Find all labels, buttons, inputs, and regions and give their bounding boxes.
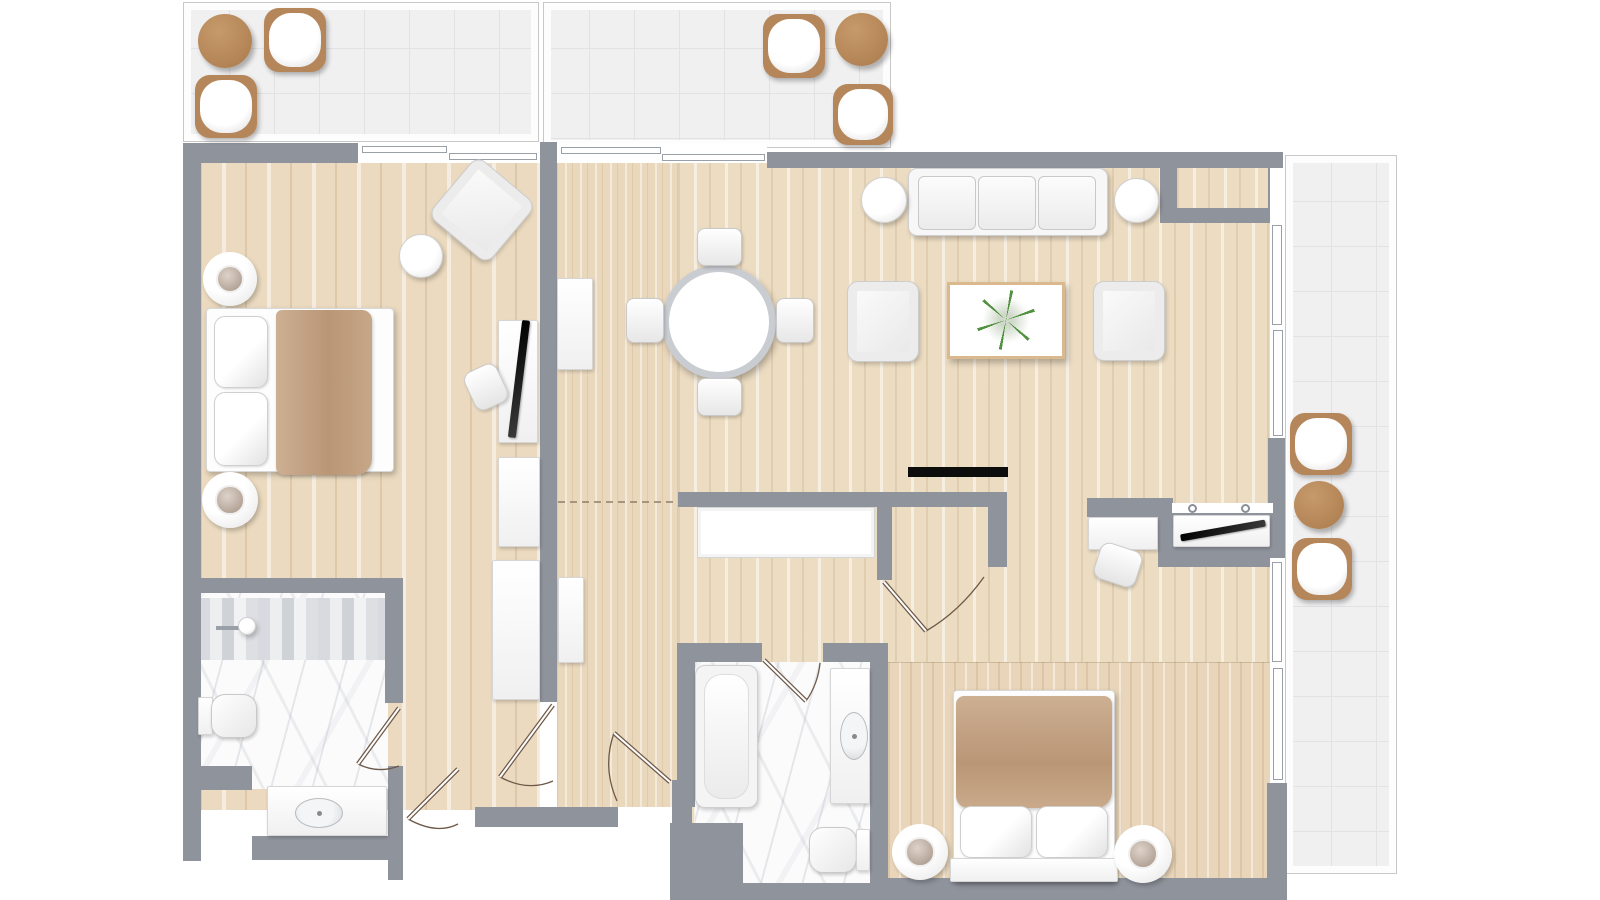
bedroom1-wardrobe xyxy=(492,560,540,700)
sliding-panel xyxy=(561,147,661,154)
bathroom1-top-wall xyxy=(183,578,403,593)
hall-sideboard-upper xyxy=(557,278,593,370)
entry-right-jamb-wall xyxy=(672,780,692,825)
balcony1-chair-a xyxy=(264,8,326,72)
bathroom1-toilet-bowl xyxy=(211,694,257,738)
bathroom2-toilet-tank xyxy=(856,829,870,871)
balcony1-round-table xyxy=(198,14,252,68)
bathroom1-right-wall-upper xyxy=(385,593,403,703)
balcony2-chair-b xyxy=(833,84,893,145)
balcony1-chair-b xyxy=(195,75,257,138)
bathroom2-bathtub xyxy=(695,665,758,808)
sofa-cushion-left xyxy=(918,176,976,230)
living-wall-tv xyxy=(908,467,1008,477)
bedroom2-headboard xyxy=(950,858,1118,882)
desk xyxy=(1088,517,1158,550)
bathroom2-toilet-bowl xyxy=(809,827,857,873)
bathroom1-right-wall-lower xyxy=(388,766,403,880)
living-armchair-right xyxy=(1094,282,1164,360)
window-panel xyxy=(1272,225,1282,325)
bedroom1-nightstand-top xyxy=(203,252,257,306)
sofa-cushion-right xyxy=(1038,176,1096,230)
hall-closet-interior xyxy=(697,507,875,558)
bedroom2-blanket xyxy=(956,696,1112,808)
bathroom2-top-wall-left xyxy=(677,643,762,662)
bathroom2-sink xyxy=(840,712,868,760)
dining-chair-left xyxy=(626,298,664,343)
window-panel xyxy=(1273,330,1283,436)
balcony3-round-table xyxy=(1294,481,1344,529)
bedroom2-nightstand-right xyxy=(1114,825,1172,883)
sofa-side-table-right xyxy=(1114,178,1159,223)
right-wall-bottom-corner xyxy=(1267,783,1287,883)
floor-plan xyxy=(0,0,1600,900)
hall-bottom-wall xyxy=(475,807,618,827)
bathroom2-top-wall-right xyxy=(823,643,888,662)
hall-floor xyxy=(557,163,678,807)
niche-knob-right xyxy=(1241,504,1250,513)
sofa-side-table-left xyxy=(861,177,907,223)
bedroom1-east-wall xyxy=(540,142,557,702)
bathroom2-bottomleft-block xyxy=(670,823,743,900)
balcony3-chair-a xyxy=(1290,413,1352,475)
hall-closet-wall xyxy=(678,492,1007,507)
dining-chair-right xyxy=(776,298,814,343)
bedroom1-side-table xyxy=(399,234,443,278)
bedroom1-pillow-a xyxy=(214,316,268,388)
bedroom1-dresser xyxy=(498,457,540,547)
coffee-table-plant xyxy=(976,290,1036,350)
window-panel xyxy=(1273,668,1283,780)
sofa-cushion-middle xyxy=(978,176,1036,230)
niche-knob-left xyxy=(1188,504,1197,513)
balcony3-chair-b xyxy=(1292,538,1352,600)
bathroom1-shower-head xyxy=(238,617,256,635)
sliding-panel xyxy=(449,153,537,160)
bedroom1-pillow-b xyxy=(214,392,268,466)
bathroom1-sink xyxy=(295,798,343,828)
bedroom2-nightstand-left xyxy=(892,824,948,880)
sliding-panel xyxy=(662,154,765,161)
bathroom2-bottom-wall xyxy=(743,883,873,900)
alcove-inset-floor xyxy=(1177,168,1268,208)
bedroom1-nightstand-bottom xyxy=(202,472,258,528)
bedroom2-pillow-right xyxy=(1036,806,1108,858)
balcony2-chair-a xyxy=(763,14,825,78)
sliding-panel xyxy=(362,146,447,153)
balcony2-round-table xyxy=(835,13,888,66)
left-outer-wall xyxy=(183,143,201,861)
bedroom1-blanket xyxy=(276,310,372,475)
bedroom1-top-wall xyxy=(183,143,358,163)
living-armchair-left xyxy=(848,282,918,361)
closet-right-wall xyxy=(988,507,1007,567)
vanity1-bottom-wall xyxy=(252,836,403,860)
hall-console-lower xyxy=(558,577,584,663)
closet-door-stub-wall xyxy=(877,507,892,580)
dining-table xyxy=(662,265,776,379)
bedroom2-pillow-left xyxy=(960,806,1032,858)
bathroom1-left-step-wall xyxy=(200,766,252,790)
dining-chair-bottom xyxy=(697,378,742,416)
window-panel xyxy=(1272,562,1282,662)
dining-chair-top xyxy=(697,228,742,266)
bedroom2-left-wall xyxy=(870,652,888,897)
